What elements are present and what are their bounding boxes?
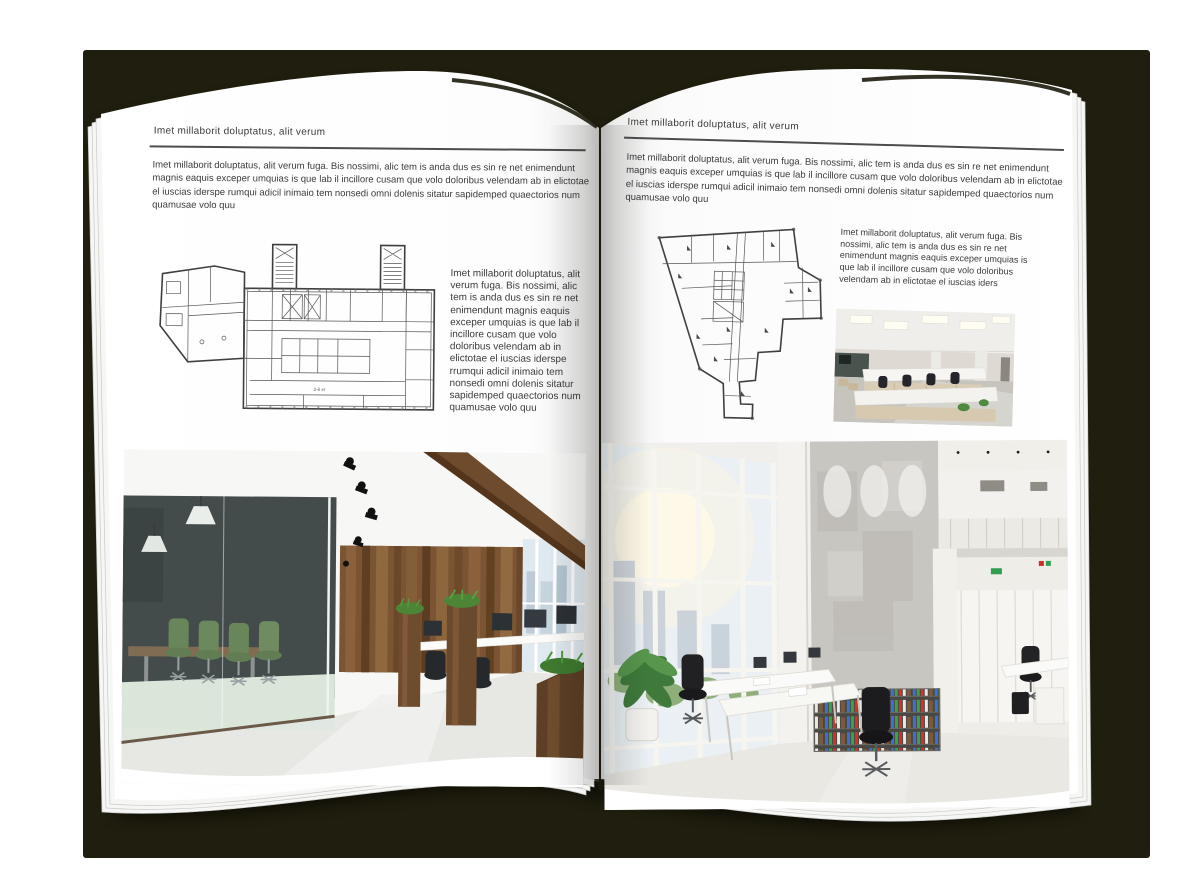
cubicle-desks [853,364,998,422]
floor-plan-left: 2-й эт [153,229,447,416]
atrium-office-illustration [602,440,1070,810]
right-side-text: Imet millaborit doluptatus, alit verum f… [839,227,1029,291]
left-header-rule [150,145,586,150]
right-intro-paragraph: Imet millaborit doluptatus, alit verum f… [625,151,1066,217]
glass-wall [121,495,336,744]
left-page-header: Imet millaborit doluptatus, alit verum [154,125,326,137]
concrete-wall [810,441,940,690]
floor-plan-left-drawing: 2-й эт [153,229,447,416]
left-intro-paragraph: Imet millaborit doluptatus, alit verum f… [152,158,598,216]
cubicle-office-illustration [833,309,1015,427]
magazine-mockup-canvas: { "canvas": { "backdrop_color": "#201e0e… [0,0,1200,891]
mezzanine [938,440,1068,558]
loft-office-illustration [121,449,586,787]
right-page: Imet millaborit doluptatus, alit verum I… [591,104,1086,477]
office-photo-left-large [121,449,586,787]
exit-sign [991,568,1002,574]
right-header-rule [624,137,1064,151]
left-page: Imet millaborit doluptatus, alit verum I… [94,105,600,819]
left-side-text: Imet millaborit doluptatus, alit verum f… [449,268,592,415]
floor-plan-caption: 2-й эт [314,386,326,392]
floor-plan-right [638,217,836,422]
office-photo-small [833,309,1015,427]
office-photo-right-large [602,440,1070,810]
floor-plan-right-drawing [638,217,836,422]
ceiling [835,309,1015,356]
right-page-header: Imet millaborit doluptatus, alit verum [627,117,799,133]
